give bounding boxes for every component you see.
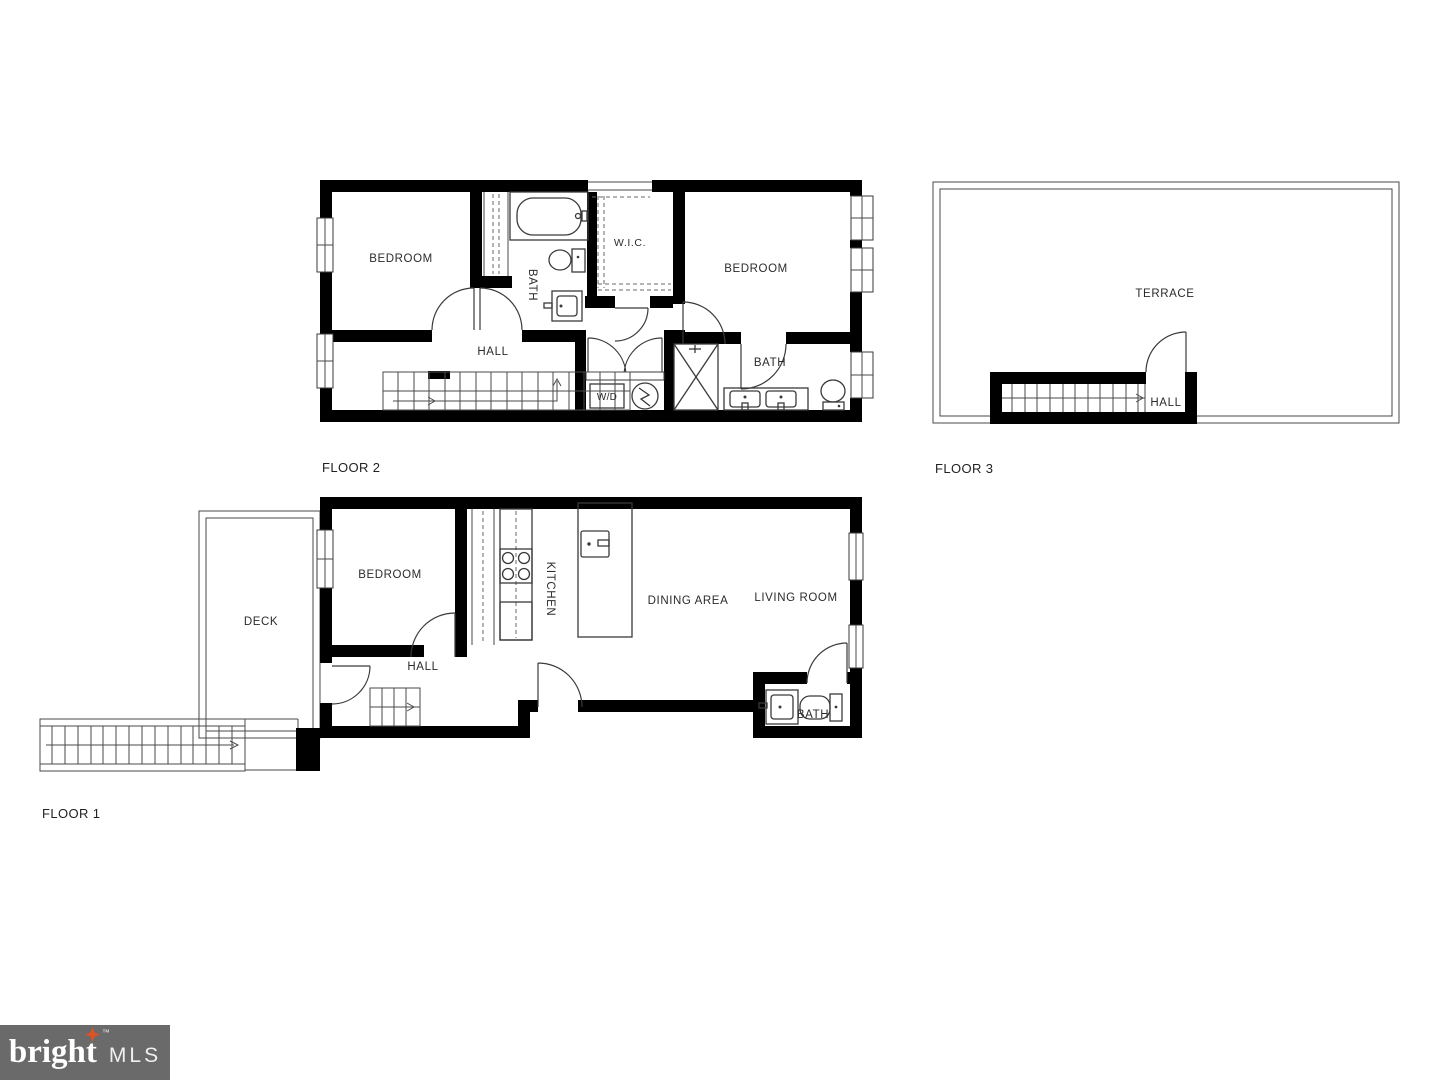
floor2-wd-label: W/D (597, 392, 617, 403)
floor2-walls (320, 180, 862, 422)
vanity-icon (724, 388, 808, 410)
brightmls-logo: bright ™ MLS (0, 1025, 170, 1080)
floor3-plan: TERRACE HALL FLOOR 3 (933, 182, 1399, 476)
floor2-plan: BEDROOM BATH W.I.C. BEDROOM HALL W/D BAT… (317, 180, 873, 475)
floor-plan-page: BEDROOM BATH W.I.C. BEDROOM HALL W/D BAT… (0, 0, 1440, 1080)
trademark-symbol: ™ (102, 1029, 110, 1037)
staircase (1002, 384, 1145, 412)
door-icon (1146, 332, 1186, 372)
kitchen-island (578, 503, 632, 637)
kitchen-label: KITCHEN (544, 562, 556, 617)
floor2-bath-upper-label: BATH (526, 269, 538, 301)
bathtub-icon (510, 192, 588, 240)
living-room-label: LIVING ROOM (754, 592, 837, 604)
staircase (370, 688, 420, 726)
floor1-bedroom-label: BEDROOM (358, 569, 422, 581)
dining-area-label: DINING AREA (648, 595, 729, 607)
sink-icon (544, 291, 582, 321)
floor2-title: FLOOR 2 (322, 460, 380, 475)
wic-closet-lines (588, 182, 671, 290)
floor1-bath-label: BATH (797, 709, 829, 721)
exterior-staircase (40, 719, 298, 771)
logo-mls-text: MLS (109, 1044, 161, 1068)
entry-pier (296, 728, 320, 771)
toilet-icon (821, 380, 845, 410)
floor1-hall-label: HALL (407, 661, 438, 673)
floor1-walls (320, 497, 862, 738)
floor3-hall-label: HALL (1150, 397, 1181, 409)
floor-plan-drawing: BEDROOM BATH W.I.C. BEDROOM HALL W/D BAT… (0, 0, 1440, 1080)
floor1-plan: DECK BEDROOM KITCHEN DINING AREA LIVING … (40, 497, 863, 821)
floor2-hall-label: HALL (477, 346, 508, 358)
bedroom-closet-lines (484, 192, 508, 276)
water-heater-icon (632, 383, 658, 409)
shower-icon (674, 344, 718, 410)
terrace-outline (933, 182, 1399, 423)
floor2-wic-label: W.I.C. (614, 237, 646, 249)
floor1-title: FLOOR 1 (42, 806, 100, 821)
floor2-bath-lower-label: BATH (754, 357, 786, 369)
fridge-icon (500, 602, 532, 640)
logo-brand-text: bright ™ (9, 1036, 97, 1069)
floor2-bedroom-left-label: BEDROOM (369, 253, 433, 265)
terrace-label: TERRACE (1135, 288, 1194, 300)
kitchen-counter (472, 509, 532, 645)
toilet-icon (549, 249, 585, 272)
deck-label: DECK (244, 616, 278, 628)
flame-icon (85, 1027, 100, 1042)
door-icon (332, 613, 847, 707)
floor3-title: FLOOR 3 (935, 461, 993, 476)
floor2-bedroom-right-label: BEDROOM (724, 263, 788, 275)
